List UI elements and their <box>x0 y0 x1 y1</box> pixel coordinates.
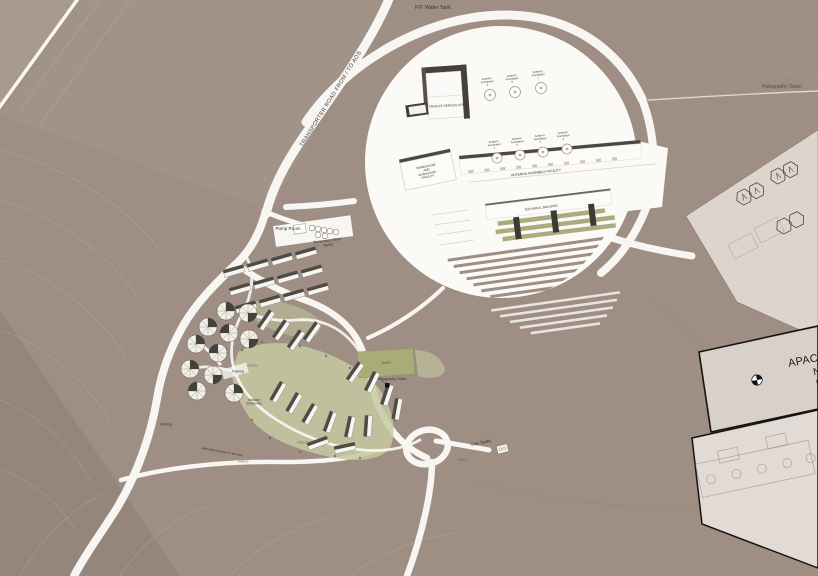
site-plan-canvas: F.P. Water Tank TRANSPORTER ROAD FROM / … <box>0 0 818 576</box>
tennis-court <box>357 348 415 378</box>
vehicle-service-building <box>421 65 470 122</box>
site-plan-drawing <box>0 0 818 576</box>
